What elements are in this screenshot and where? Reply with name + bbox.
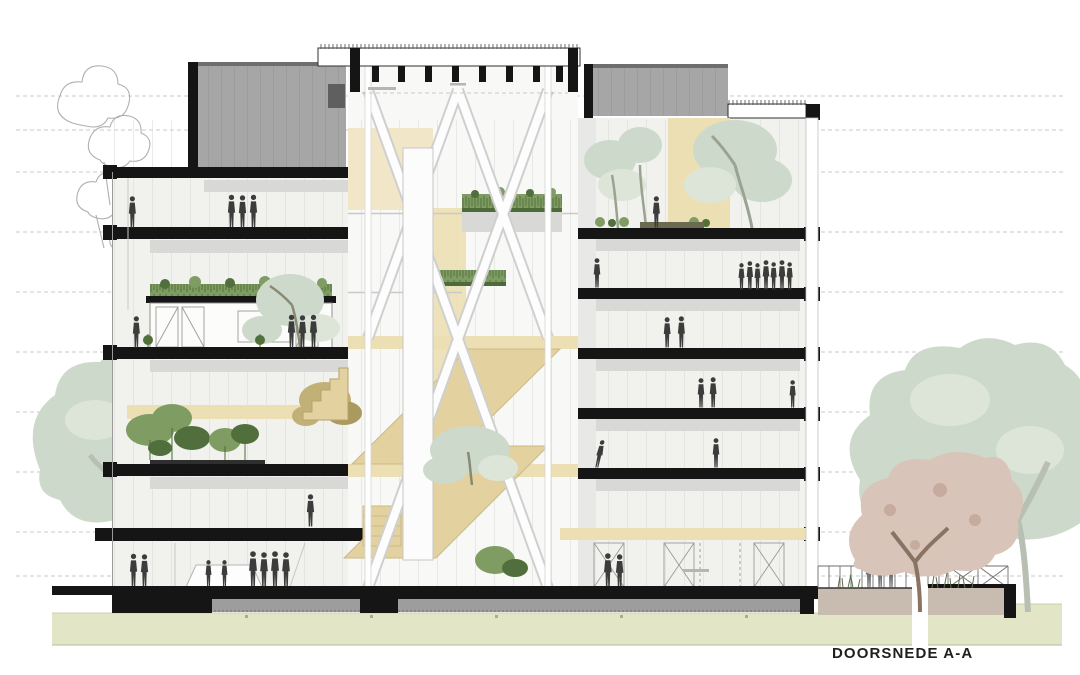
section-canvas — [0, 0, 1080, 675]
soil-band — [52, 613, 912, 645]
right-facade — [806, 118, 818, 588]
terrace-wall-left — [818, 588, 912, 615]
right-roof-mass — [584, 64, 820, 120]
foundation — [118, 599, 810, 612]
section-drawing: DOORSNEDE A-A — [0, 0, 1080, 675]
left-roof-mass — [188, 62, 346, 172]
building — [95, 44, 820, 588]
elevator-shaft — [403, 148, 433, 560]
drawing-title: DOORSNEDE A-A — [832, 645, 973, 662]
terrace-wall-right — [928, 586, 1006, 615]
